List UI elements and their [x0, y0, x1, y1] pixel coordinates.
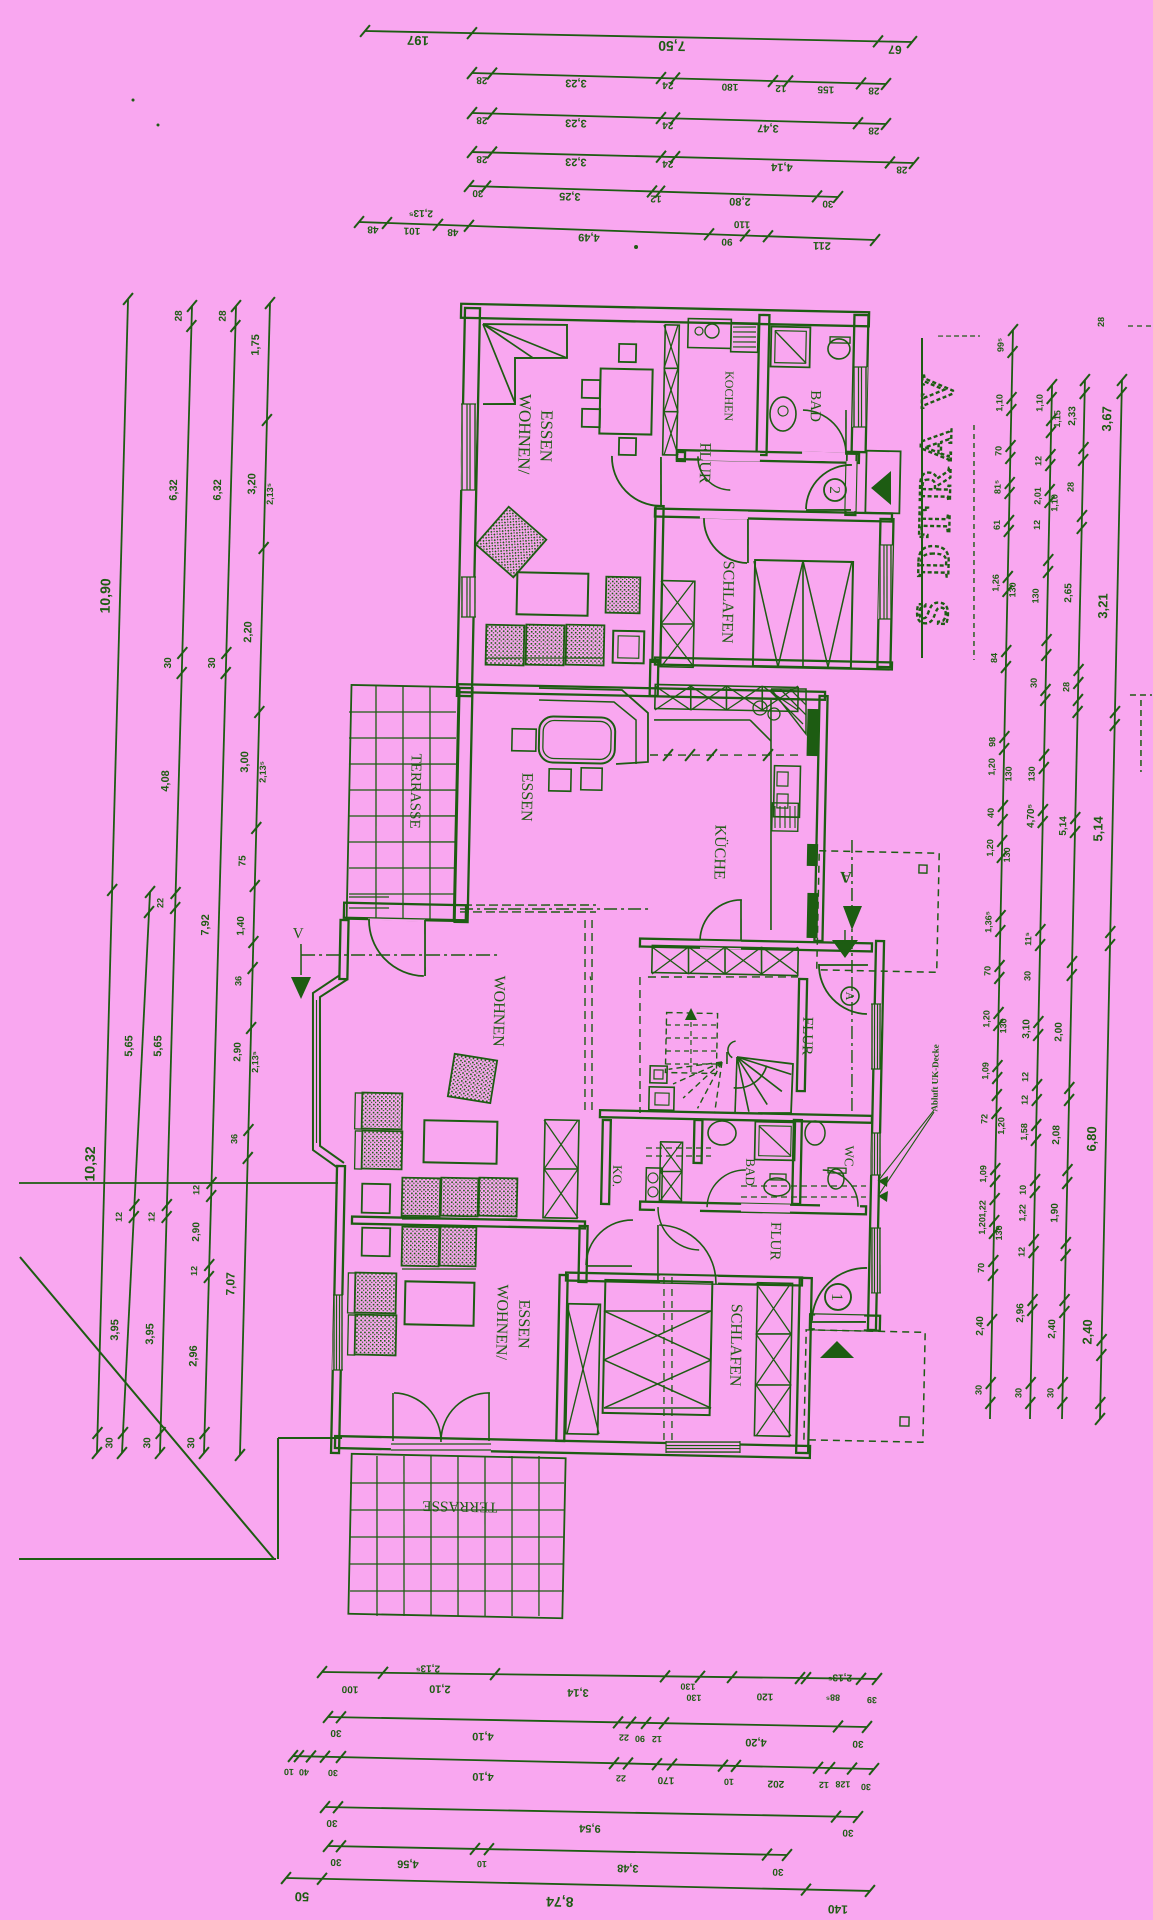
svg-text:1,20: 1,20 — [985, 839, 995, 857]
svg-text:2,90: 2,90 — [232, 1042, 243, 1062]
svg-text:70: 70 — [976, 1263, 986, 1273]
svg-text:10: 10 — [724, 1777, 734, 1787]
svg-text:S DTRA V: S DTRA V — [906, 369, 962, 627]
svg-text:75: 75 — [237, 855, 248, 867]
svg-text:9,54: 9,54 — [578, 1822, 601, 1834]
svg-text:30: 30 — [822, 198, 834, 209]
svg-text:BAD: BAD — [743, 1158, 759, 1186]
svg-text:1,26: 1,26 — [991, 574, 1001, 592]
svg-text:1: 1 — [828, 1293, 845, 1301]
svg-text:130: 130 — [994, 1225, 1004, 1240]
svg-text:5,65: 5,65 — [123, 1035, 135, 1057]
svg-text:40: 40 — [299, 1767, 309, 1777]
svg-text:130: 130 — [680, 1681, 695, 1691]
svg-text:2,13⁵: 2,13⁵ — [258, 761, 268, 783]
svg-text:3,25: 3,25 — [559, 190, 581, 202]
svg-text:155: 155 — [817, 83, 834, 94]
svg-text:5,14: 5,14 — [1090, 815, 1106, 841]
svg-text:1,10: 1,10 — [1049, 494, 1059, 512]
svg-text:130: 130 — [686, 1693, 701, 1703]
svg-text:30: 30 — [330, 1727, 342, 1738]
svg-text:WOHNEN: WOHNEN — [489, 975, 507, 1047]
svg-text:ESSEN: ESSEN — [517, 773, 535, 823]
svg-text:22: 22 — [619, 1732, 629, 1742]
svg-text:12: 12 — [147, 1212, 157, 1222]
svg-text:22: 22 — [155, 898, 165, 908]
svg-text:2,13⁵: 2,13⁵ — [408, 207, 433, 219]
svg-text:WOHNEN/: WOHNEN/ — [514, 394, 535, 475]
svg-text:2,00: 2,00 — [1053, 1022, 1064, 1042]
svg-text:1,58: 1,58 — [1019, 1123, 1029, 1141]
svg-text:3,20: 3,20 — [246, 473, 258, 495]
svg-text:1,09: 1,09 — [978, 1165, 988, 1183]
svg-text:30: 30 — [186, 1437, 197, 1449]
svg-text:81⁵: 81⁵ — [993, 480, 1003, 494]
svg-text:5,14: 5,14 — [1058, 816, 1069, 836]
svg-text:50: 50 — [295, 1889, 310, 1904]
svg-text:2,96: 2,96 — [188, 1345, 200, 1367]
svg-text:39: 39 — [867, 1695, 877, 1705]
svg-text:12: 12 — [819, 1780, 829, 1790]
svg-text:3,14: 3,14 — [566, 1686, 589, 1698]
svg-text:1,22: 1,22 — [1017, 1204, 1027, 1222]
svg-text:12: 12 — [1032, 520, 1042, 530]
svg-text:BAD: BAD — [807, 390, 824, 422]
svg-text:28: 28 — [174, 310, 185, 322]
svg-text:28: 28 — [476, 74, 488, 85]
svg-text:30: 30 — [142, 1437, 153, 1449]
svg-text:12: 12 — [1033, 456, 1043, 466]
svg-text:2,13⁵: 2,13⁵ — [250, 1051, 260, 1073]
svg-text:140: 140 — [827, 1902, 848, 1916]
svg-text:30: 30 — [326, 1817, 338, 1828]
svg-text:1,15: 1,15 — [1052, 410, 1062, 428]
svg-text:28: 28 — [1066, 482, 1076, 492]
svg-text:2,40: 2,40 — [975, 1316, 986, 1336]
svg-text:12: 12 — [114, 1212, 124, 1222]
svg-text:24: 24 — [662, 119, 674, 130]
svg-text:KÜCHE: KÜCHE — [710, 824, 729, 879]
svg-text:2,40: 2,40 — [1047, 1319, 1058, 1339]
svg-text:SCHLAFEN: SCHLAFEN — [718, 561, 737, 644]
svg-text:24: 24 — [662, 79, 674, 90]
svg-text:3,23: 3,23 — [565, 155, 587, 167]
svg-text:88⁵: 88⁵ — [826, 1692, 840, 1702]
svg-text:128: 128 — [835, 1779, 850, 1789]
svg-text:3,95: 3,95 — [109, 1319, 121, 1341]
svg-text:12: 12 — [652, 1734, 662, 1744]
svg-text:30: 30 — [163, 657, 174, 669]
svg-text:5,65: 5,65 — [152, 1035, 164, 1057]
svg-text:84: 84 — [989, 653, 999, 663]
svg-text:100: 100 — [341, 1683, 358, 1694]
svg-text:130: 130 — [1007, 582, 1017, 597]
svg-text:28: 28 — [218, 310, 229, 322]
svg-text:2,13⁵: 2,13⁵ — [265, 483, 275, 505]
svg-text:WOHNEN/: WOHNEN/ — [492, 1284, 511, 1360]
svg-text:110: 110 — [733, 218, 750, 229]
svg-text:120: 120 — [756, 1690, 773, 1701]
svg-text:4,70⁵: 4,70⁵ — [1026, 803, 1038, 828]
svg-text:1,20: 1,20 — [996, 1117, 1006, 1135]
svg-text:7,07: 7,07 — [223, 1272, 237, 1296]
svg-text:1,40: 1,40 — [236, 916, 247, 936]
svg-text:1,10: 1,10 — [1034, 394, 1044, 412]
svg-text:3,23: 3,23 — [565, 77, 587, 89]
svg-text:6,80: 6,80 — [1084, 1126, 1100, 1152]
svg-text:30: 30 — [328, 1768, 338, 1778]
svg-text:36: 36 — [233, 976, 243, 986]
svg-text:2,80: 2,80 — [729, 195, 751, 207]
svg-text:130: 130 — [998, 1018, 1008, 1033]
svg-text:2: 2 — [826, 486, 842, 494]
svg-text:70: 70 — [993, 446, 1003, 456]
svg-text:TERRASSE: TERRASSE — [422, 1497, 497, 1515]
svg-text:30: 30 — [852, 1738, 864, 1749]
svg-text:3,00: 3,00 — [239, 751, 251, 773]
svg-text:12: 12 — [1020, 1095, 1030, 1105]
svg-text:2,13⁵: 2,13⁵ — [827, 1671, 852, 1683]
svg-text:197: 197 — [407, 33, 429, 48]
svg-text:30: 30 — [973, 1385, 983, 1395]
svg-text:4,20: 4,20 — [745, 1736, 767, 1748]
svg-text:SCHLAFEN: SCHLAFEN — [726, 1304, 745, 1387]
svg-text:10: 10 — [477, 1859, 487, 1869]
svg-text:6,32: 6,32 — [168, 479, 180, 501]
svg-text:61: 61 — [992, 520, 1002, 530]
svg-text:12: 12 — [1016, 1247, 1026, 1257]
svg-text:67: 67 — [888, 43, 902, 57]
svg-text:7,92: 7,92 — [200, 914, 212, 936]
svg-text:40: 40 — [986, 808, 996, 818]
svg-text:12: 12 — [775, 82, 787, 93]
svg-text:30: 30 — [772, 1866, 784, 1877]
svg-text:8,74: 8,74 — [546, 1894, 574, 1911]
svg-text:30: 30 — [330, 1856, 342, 1867]
svg-text:202: 202 — [767, 1778, 784, 1789]
svg-text:V: V — [292, 926, 303, 942]
svg-text:TERRASSE: TERRASSE — [406, 753, 424, 828]
svg-text:2,96: 2,96 — [1015, 1303, 1026, 1323]
svg-text:1,09: 1,09 — [980, 1062, 990, 1080]
svg-text:1,22: 1,22 — [977, 1200, 987, 1218]
svg-text:180: 180 — [721, 81, 738, 92]
svg-text:28: 28 — [476, 114, 488, 125]
svg-text:4,56: 4,56 — [397, 1857, 419, 1869]
svg-text:170: 170 — [657, 1774, 674, 1785]
svg-text:28: 28 — [476, 153, 488, 164]
svg-text:3,67: 3,67 — [1099, 406, 1115, 432]
svg-text:12: 12 — [650, 192, 662, 203]
svg-text:KOCHEN: KOCHEN — [722, 371, 737, 422]
svg-text:FLUR: FLUR — [799, 1017, 816, 1056]
svg-text:4,14: 4,14 — [770, 160, 793, 172]
svg-text:22: 22 — [616, 1773, 626, 1783]
svg-text:30: 30 — [104, 1437, 115, 1449]
svg-text:36: 36 — [229, 1134, 239, 1144]
svg-text:30: 30 — [207, 657, 218, 669]
svg-text:28: 28 — [1096, 317, 1106, 327]
svg-text:7,50: 7,50 — [658, 38, 686, 55]
svg-text:48: 48 — [367, 223, 379, 234]
svg-text:211: 211 — [813, 239, 831, 251]
svg-text:12: 12 — [189, 1266, 199, 1276]
svg-text:4,10: 4,10 — [472, 1730, 494, 1742]
svg-text:3,23: 3,23 — [565, 116, 587, 128]
svg-text:28: 28 — [868, 125, 880, 136]
svg-text:KO.: KO. — [610, 1165, 625, 1187]
svg-text:90: 90 — [635, 1734, 645, 1744]
svg-text:2,01: 2,01 — [1032, 487, 1042, 505]
svg-text:24: 24 — [662, 158, 674, 169]
svg-text:2,10: 2,10 — [429, 1682, 451, 1694]
svg-text:ESSEN: ESSEN — [514, 1299, 532, 1349]
svg-text:28: 28 — [896, 164, 908, 175]
svg-text:4,08: 4,08 — [160, 770, 172, 792]
svg-text:30: 30 — [1013, 1388, 1023, 1398]
svg-text:30: 30 — [842, 1827, 854, 1838]
svg-text:72: 72 — [979, 1114, 989, 1124]
svg-text:3,95: 3,95 — [144, 1323, 156, 1345]
svg-text:1,75: 1,75 — [250, 334, 262, 356]
svg-text:Abluft UK-Decke: Abluft UK-Decke — [929, 1044, 940, 1111]
svg-text:30: 30 — [1022, 971, 1032, 981]
svg-text:2,08: 2,08 — [1051, 1125, 1062, 1145]
svg-text:101: 101 — [403, 225, 420, 236]
svg-text:10: 10 — [1018, 1185, 1028, 1195]
svg-text:6,32: 6,32 — [212, 479, 224, 501]
svg-text:3,10: 3,10 — [1021, 1019, 1032, 1039]
svg-text:3,21: 3,21 — [1095, 593, 1111, 619]
svg-text:4,49: 4,49 — [578, 231, 600, 243]
svg-text:30: 30 — [1045, 1388, 1055, 1398]
svg-text:A: A — [840, 868, 852, 885]
svg-text:130: 130 — [1027, 766, 1037, 781]
svg-text:1,10: 1,10 — [994, 394, 1004, 412]
svg-text:2,13⁵: 2,13⁵ — [415, 1662, 440, 1674]
svg-text:2,33: 2,33 — [1067, 406, 1078, 426]
svg-text:28: 28 — [868, 85, 880, 96]
svg-text:70: 70 — [982, 966, 992, 976]
svg-text:3,48: 3,48 — [617, 1862, 639, 1874]
svg-text:1,20: 1,20 — [981, 1010, 991, 1028]
svg-text:1,36⁵: 1,36⁵ — [983, 911, 993, 933]
svg-text:2,20: 2,20 — [242, 621, 254, 643]
svg-text:12: 12 — [191, 1185, 201, 1195]
svg-text:130: 130 — [1030, 588, 1040, 603]
svg-text:1,90: 1,90 — [1049, 1203, 1060, 1223]
svg-text:130: 130 — [1003, 766, 1013, 781]
svg-text:10: 10 — [284, 1767, 294, 1777]
svg-text:1,20: 1,20 — [987, 758, 997, 776]
svg-text:30: 30 — [1029, 678, 1039, 688]
svg-text:WC: WC — [842, 1145, 857, 1166]
svg-text:10,32: 10,32 — [81, 1146, 98, 1182]
svg-text:130: 130 — [1002, 847, 1012, 862]
svg-text:2,40: 2,40 — [1080, 1319, 1096, 1345]
svg-text:12: 12 — [1020, 1072, 1030, 1082]
svg-text:A: A — [843, 992, 857, 1001]
svg-text:98: 98 — [987, 737, 997, 747]
svg-text:4,10: 4,10 — [472, 1770, 494, 1782]
svg-text:28: 28 — [1061, 682, 1071, 692]
svg-text:30: 30 — [861, 1782, 871, 1792]
svg-text:48: 48 — [447, 226, 459, 237]
svg-text:10,90: 10,90 — [97, 578, 114, 614]
svg-text:90: 90 — [721, 236, 733, 247]
svg-text:FLUR: FLUR — [696, 442, 714, 484]
svg-text:2,90: 2,90 — [191, 1222, 202, 1242]
svg-text:11⁵: 11⁵ — [1023, 932, 1033, 946]
svg-text:30: 30 — [472, 187, 484, 198]
svg-text:1,20: 1,20 — [977, 1217, 987, 1235]
svg-text:2,65: 2,65 — [1063, 583, 1074, 603]
svg-text:FLUR: FLUR — [767, 1222, 784, 1261]
svg-text:ESSEN: ESSEN — [536, 410, 556, 462]
svg-text:99⁵: 99⁵ — [996, 338, 1006, 352]
svg-text:3,47: 3,47 — [757, 122, 779, 134]
